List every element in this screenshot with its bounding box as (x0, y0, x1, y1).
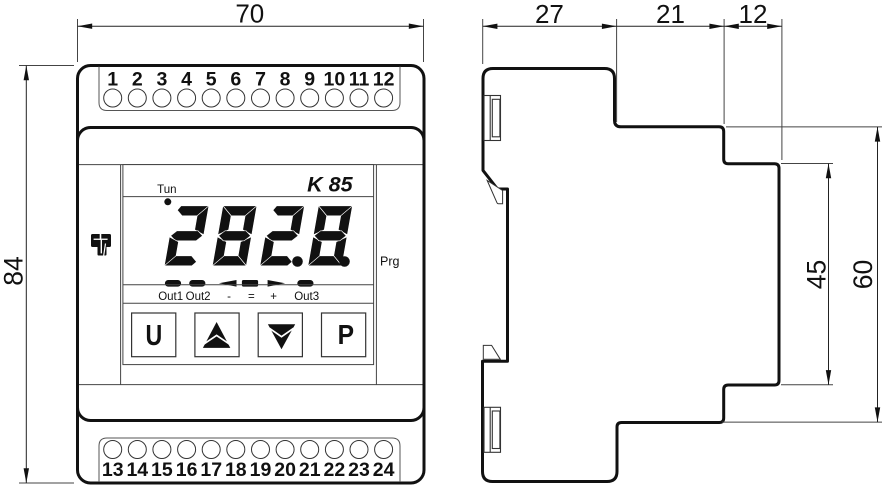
svg-text:2: 2 (132, 69, 143, 91)
svg-text:9: 9 (304, 69, 315, 91)
svg-text:6: 6 (230, 69, 241, 91)
svg-text:27: 27 (535, 0, 564, 29)
svg-text:Out2: Out2 (186, 291, 211, 303)
svg-text:Out1: Out1 (158, 291, 183, 303)
svg-text:7: 7 (255, 69, 266, 91)
svg-text:21: 21 (656, 0, 685, 29)
svg-text:20: 20 (274, 459, 296, 481)
svg-text:Prg: Prg (380, 255, 400, 269)
svg-text:Tun: Tun (157, 184, 176, 196)
svg-text:11: 11 (349, 69, 370, 91)
svg-text:14: 14 (126, 459, 148, 481)
svg-text:13: 13 (102, 459, 124, 481)
svg-text:=: = (248, 291, 255, 303)
svg-text:45: 45 (801, 260, 831, 289)
svg-text:12: 12 (739, 0, 768, 29)
svg-text:8: 8 (280, 69, 291, 91)
svg-text:5: 5 (206, 69, 217, 91)
svg-text:15: 15 (151, 459, 173, 481)
svg-text:K 85: K 85 (307, 173, 353, 197)
svg-text:10: 10 (324, 69, 346, 91)
svg-text:22: 22 (324, 459, 346, 481)
svg-text:21: 21 (299, 459, 321, 481)
svg-text:18: 18 (225, 459, 247, 481)
svg-text:16: 16 (176, 459, 198, 481)
svg-text:Out3: Out3 (294, 291, 319, 303)
svg-text:24: 24 (373, 459, 395, 481)
svg-text:84: 84 (0, 256, 28, 285)
svg-text:4: 4 (181, 69, 192, 91)
svg-text:12: 12 (373, 69, 395, 91)
svg-text:+: + (270, 291, 277, 303)
svg-text:23: 23 (348, 459, 370, 481)
svg-text:70: 70 (235, 0, 264, 29)
svg-text:19: 19 (250, 459, 272, 481)
svg-text:1: 1 (107, 69, 118, 91)
svg-text:60: 60 (848, 260, 878, 289)
svg-text:P: P (338, 319, 354, 351)
svg-text:17: 17 (200, 459, 222, 481)
svg-text:U: U (146, 319, 163, 352)
svg-text:-: - (227, 291, 231, 303)
svg-text:3: 3 (156, 69, 167, 91)
